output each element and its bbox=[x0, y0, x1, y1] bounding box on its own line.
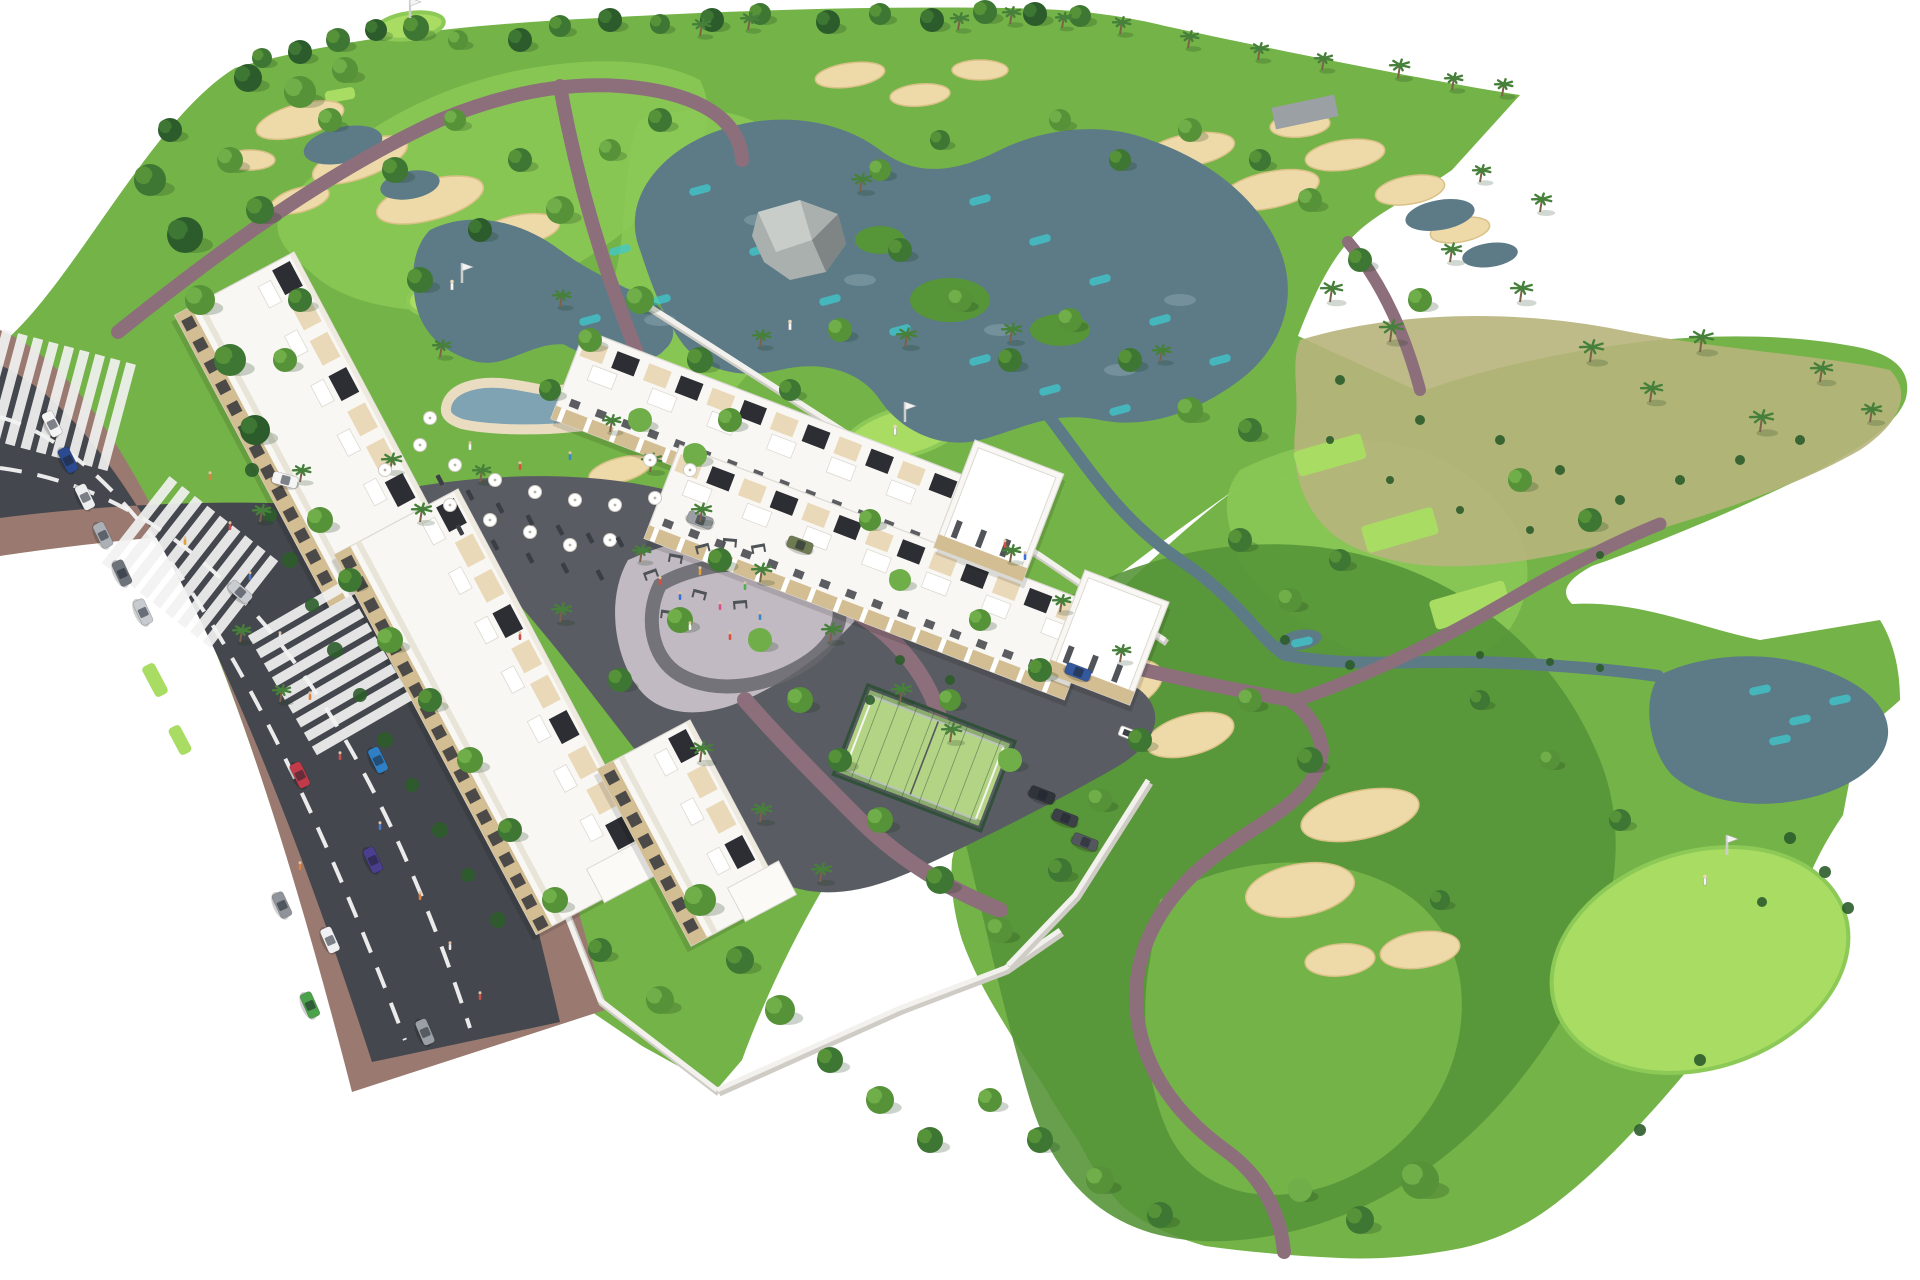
palm-crown bbox=[830, 627, 834, 631]
tree-lobe bbox=[1550, 757, 1560, 767]
person-body bbox=[449, 944, 452, 950]
tree-lobe bbox=[1009, 356, 1021, 368]
tree-lobe bbox=[1099, 1176, 1113, 1190]
tree-lobe bbox=[899, 246, 911, 258]
tree-lobe bbox=[929, 1136, 942, 1149]
palm-crown bbox=[480, 468, 484, 472]
person-figure bbox=[379, 821, 382, 830]
tree-lobe bbox=[1249, 426, 1261, 438]
tree-lobe bbox=[989, 1096, 1001, 1108]
parasol-pole bbox=[489, 519, 492, 522]
person-body bbox=[569, 454, 572, 460]
palm-crown bbox=[560, 293, 564, 297]
person-body bbox=[279, 634, 282, 640]
bush bbox=[327, 642, 343, 658]
palm-crown bbox=[1590, 345, 1594, 349]
tree-lobe bbox=[454, 117, 465, 128]
person-figure bbox=[519, 461, 522, 470]
person-figure bbox=[744, 581, 747, 590]
person-head bbox=[339, 751, 342, 754]
golfer-body bbox=[451, 283, 454, 290]
parasol-pole bbox=[419, 444, 422, 447]
person-figure bbox=[689, 621, 692, 630]
palm-crown bbox=[440, 343, 444, 347]
tree-lobe bbox=[419, 276, 432, 289]
palm-crown bbox=[1060, 598, 1064, 602]
tree-lobe bbox=[254, 426, 269, 441]
palm-crown bbox=[1398, 63, 1402, 67]
bush bbox=[1415, 415, 1425, 425]
person-head bbox=[309, 691, 312, 694]
person-head bbox=[719, 601, 722, 604]
person-figure bbox=[309, 691, 312, 700]
palm-crown bbox=[560, 607, 564, 611]
palm-crown bbox=[280, 688, 284, 692]
bush bbox=[945, 675, 955, 685]
bush bbox=[1456, 506, 1464, 514]
tree-lobe bbox=[1139, 736, 1151, 748]
palm-crown bbox=[420, 507, 424, 511]
tree-lobe bbox=[879, 1096, 893, 1110]
person-figure bbox=[719, 601, 722, 610]
bush bbox=[1675, 475, 1685, 485]
tree-lobe bbox=[979, 617, 990, 628]
person-body bbox=[679, 594, 682, 600]
palm-crown bbox=[240, 628, 244, 632]
golfer-head bbox=[893, 425, 897, 429]
tree-lobe bbox=[1159, 1211, 1172, 1224]
tree-lobe bbox=[299, 48, 311, 60]
golfer-body bbox=[1704, 878, 1707, 885]
parasol-pole bbox=[429, 417, 432, 420]
car bbox=[268, 889, 294, 923]
tree bbox=[765, 995, 803, 1025]
palm-crown bbox=[1452, 76, 1456, 80]
tree-lobe bbox=[1099, 796, 1111, 808]
tree-lobe bbox=[729, 416, 741, 428]
person-figure bbox=[279, 631, 282, 640]
tree-lobe bbox=[519, 156, 531, 168]
bush bbox=[895, 655, 905, 665]
tree bbox=[1348, 248, 1379, 272]
parasol-pole bbox=[574, 499, 577, 502]
parasol bbox=[644, 454, 657, 467]
palm-crown bbox=[760, 567, 764, 571]
palm-crown bbox=[700, 507, 704, 511]
golfer bbox=[1703, 875, 1707, 885]
person-figure bbox=[469, 441, 472, 450]
parasol-pole bbox=[454, 464, 457, 467]
person-body bbox=[759, 614, 762, 620]
bush bbox=[461, 868, 475, 882]
tree-lobe bbox=[1419, 1174, 1438, 1193]
parasol bbox=[604, 534, 617, 547]
palm-crown bbox=[1760, 415, 1764, 419]
person-body bbox=[1024, 554, 1027, 560]
tree bbox=[817, 1047, 850, 1073]
tree-lobe bbox=[229, 355, 245, 371]
tree-lobe bbox=[759, 11, 770, 22]
palm-crown bbox=[260, 508, 264, 512]
tree-lobe bbox=[1619, 817, 1630, 828]
person-head bbox=[1024, 551, 1027, 554]
person-figure bbox=[449, 941, 452, 950]
tree-lobe bbox=[1519, 476, 1531, 488]
bush bbox=[1476, 651, 1484, 659]
palm-crown bbox=[1010, 10, 1014, 14]
person-figure bbox=[1004, 539, 1007, 548]
palm-tree bbox=[1532, 194, 1555, 216]
person-head bbox=[744, 581, 747, 584]
tree-lobe bbox=[599, 946, 611, 958]
tree-lobe bbox=[1359, 256, 1371, 268]
tree-lobe bbox=[1339, 557, 1350, 568]
bush bbox=[1280, 635, 1290, 645]
person-head bbox=[519, 631, 522, 634]
palm-crown bbox=[748, 16, 752, 20]
tree-lobe bbox=[879, 816, 892, 829]
person-head bbox=[449, 941, 452, 944]
parasol-pole bbox=[614, 504, 617, 507]
person-head bbox=[569, 451, 572, 454]
tree-lobe bbox=[759, 636, 771, 648]
person-head bbox=[184, 536, 187, 539]
person-body bbox=[479, 994, 482, 1000]
golfer bbox=[788, 320, 792, 330]
tree-lobe bbox=[1309, 756, 1322, 769]
bush bbox=[1842, 902, 1854, 914]
palm-tree bbox=[1442, 244, 1465, 266]
tree-lobe bbox=[699, 356, 712, 369]
person-head bbox=[249, 571, 252, 574]
bush bbox=[405, 778, 419, 792]
tree-lobe bbox=[149, 175, 165, 191]
person-body bbox=[519, 464, 522, 470]
palm-crown bbox=[1700, 335, 1704, 339]
palm-crown bbox=[1322, 56, 1326, 60]
palm-crown bbox=[1258, 46, 1262, 50]
tree-lobe bbox=[619, 676, 631, 688]
tree bbox=[866, 1086, 902, 1114]
tree-lobe bbox=[469, 756, 482, 769]
tree-lobe bbox=[879, 11, 890, 22]
tree-lobe bbox=[1309, 196, 1321, 208]
flag-pennant bbox=[410, 0, 421, 6]
tree-lobe bbox=[639, 416, 651, 428]
bush bbox=[1596, 664, 1604, 672]
parasol-pole bbox=[649, 459, 652, 462]
bush bbox=[245, 463, 259, 477]
parasol bbox=[449, 459, 462, 472]
palm-crown bbox=[1120, 20, 1124, 24]
tree-lobe bbox=[319, 516, 332, 529]
person-body bbox=[209, 474, 212, 480]
car bbox=[296, 989, 322, 1023]
person-figure bbox=[679, 591, 682, 600]
parasol-pole bbox=[529, 531, 532, 534]
person-body bbox=[229, 524, 232, 530]
palm-tree bbox=[1511, 282, 1536, 306]
tree-lobe bbox=[262, 55, 272, 65]
bush bbox=[1634, 1124, 1646, 1136]
person-figure bbox=[299, 861, 302, 870]
tree-lobe bbox=[959, 296, 971, 308]
tree-lobe bbox=[659, 996, 673, 1010]
person-head bbox=[469, 441, 472, 444]
palm-tree bbox=[1473, 165, 1493, 185]
bush bbox=[1345, 660, 1355, 670]
person-body bbox=[309, 694, 312, 700]
palm-crown bbox=[1120, 648, 1124, 652]
tree-lobe bbox=[869, 517, 880, 528]
tree-lobe bbox=[1069, 316, 1081, 328]
tree-lobe bbox=[1249, 696, 1261, 708]
person-figure bbox=[1024, 551, 1027, 560]
tree-lobe bbox=[479, 226, 491, 238]
tree-lobe bbox=[394, 166, 407, 179]
person-head bbox=[479, 991, 482, 994]
tree bbox=[326, 28, 357, 52]
palm-crown bbox=[390, 457, 394, 461]
parasol-pole bbox=[569, 544, 572, 547]
person-body bbox=[699, 569, 702, 575]
person-head bbox=[699, 566, 702, 569]
palm-crown bbox=[1820, 366, 1824, 370]
bush bbox=[282, 552, 298, 568]
bush bbox=[1795, 435, 1805, 445]
tree-lobe bbox=[1039, 666, 1051, 678]
pond bbox=[1461, 239, 1520, 271]
person-figure bbox=[419, 891, 422, 900]
tree-lobe bbox=[229, 156, 242, 169]
person-head bbox=[729, 631, 732, 634]
tree-lobe bbox=[509, 826, 521, 838]
tree-lobe bbox=[329, 116, 341, 128]
parasol-pole bbox=[654, 497, 657, 500]
bush bbox=[353, 688, 367, 702]
tree-lobe bbox=[827, 18, 839, 30]
tree-lobe bbox=[299, 87, 315, 103]
tree-lobe bbox=[899, 577, 910, 588]
tree-lobe bbox=[719, 556, 731, 568]
person-body bbox=[659, 579, 662, 585]
golfer-body bbox=[894, 428, 897, 435]
palm-crown bbox=[640, 548, 644, 552]
tree-lobe bbox=[660, 21, 670, 31]
tree-lobe bbox=[169, 126, 181, 138]
palm-crown bbox=[1540, 197, 1544, 201]
bush bbox=[1735, 455, 1745, 465]
person-figure bbox=[699, 566, 702, 575]
palm-crown bbox=[905, 332, 909, 336]
bush bbox=[305, 598, 319, 612]
person-head bbox=[379, 821, 382, 824]
bush bbox=[1546, 658, 1554, 666]
palm-crown bbox=[1160, 348, 1164, 352]
bush bbox=[865, 695, 875, 705]
person-body bbox=[519, 634, 522, 640]
person-head bbox=[1004, 539, 1007, 542]
tree-lobe bbox=[1259, 157, 1270, 168]
person-figure bbox=[249, 571, 252, 580]
tree-lobe bbox=[1419, 296, 1431, 308]
golfer bbox=[893, 425, 897, 435]
palm-crown bbox=[1650, 386, 1654, 390]
bush bbox=[1819, 866, 1831, 878]
bush bbox=[377, 732, 393, 748]
bush bbox=[490, 912, 506, 928]
tree-lobe bbox=[699, 895, 715, 911]
parasol bbox=[484, 514, 497, 527]
tree-lobe bbox=[1299, 1186, 1311, 1198]
parasol bbox=[444, 499, 457, 512]
tree-lobe bbox=[559, 206, 573, 220]
light-reflection bbox=[1164, 294, 1196, 306]
parasol bbox=[424, 412, 437, 425]
person-head bbox=[689, 621, 692, 624]
person-figure bbox=[759, 611, 762, 620]
scene-canvas bbox=[0, 0, 1920, 1280]
person-body bbox=[184, 539, 187, 545]
golfer bbox=[450, 280, 454, 290]
person-body bbox=[299, 864, 302, 870]
palm-crown bbox=[820, 867, 824, 871]
palm-crown bbox=[1480, 168, 1484, 172]
person-body bbox=[719, 604, 722, 610]
parasol bbox=[489, 474, 502, 487]
person-body bbox=[469, 444, 472, 450]
tree-lobe bbox=[779, 1006, 794, 1021]
parasol-pole bbox=[494, 479, 497, 482]
bush bbox=[432, 822, 448, 838]
person-body bbox=[729, 634, 732, 640]
tree-lobe bbox=[1059, 117, 1070, 128]
palm-crown bbox=[1520, 286, 1524, 290]
parasol bbox=[684, 464, 697, 477]
person-head bbox=[759, 611, 762, 614]
parasol bbox=[609, 499, 622, 512]
palm-crown bbox=[1450, 247, 1454, 251]
tree-lobe bbox=[184, 230, 202, 248]
tree-lobe bbox=[554, 896, 567, 909]
tree-lobe bbox=[589, 336, 601, 348]
person-head bbox=[519, 461, 522, 464]
palm-crown bbox=[1188, 34, 1192, 38]
person-head bbox=[229, 521, 232, 524]
tree-lobe bbox=[879, 167, 890, 178]
person-head bbox=[209, 471, 212, 474]
palm-crown bbox=[700, 746, 704, 750]
light-reflection bbox=[844, 274, 876, 286]
person-figure bbox=[479, 991, 482, 1000]
tree-lobe bbox=[789, 387, 800, 398]
parasol bbox=[524, 526, 537, 539]
tree-lobe bbox=[1009, 756, 1021, 768]
tree-lobe bbox=[299, 296, 311, 308]
palm-crown bbox=[300, 468, 304, 472]
tree-lobe bbox=[1079, 13, 1090, 24]
parasol-pole bbox=[384, 469, 387, 472]
person-head bbox=[299, 861, 302, 864]
person-body bbox=[744, 584, 747, 590]
tree-lobe bbox=[519, 36, 531, 48]
palm-crown bbox=[1870, 407, 1874, 411]
person-figure bbox=[519, 631, 522, 640]
palm-crown bbox=[700, 22, 704, 26]
parasol-pole bbox=[609, 539, 612, 542]
bush bbox=[1694, 1054, 1706, 1066]
tree-lobe bbox=[389, 636, 402, 649]
tree-lobe bbox=[415, 24, 428, 37]
person-body bbox=[379, 824, 382, 830]
palm-crown bbox=[1502, 82, 1506, 86]
tree-lobe bbox=[711, 16, 723, 28]
tree-lobe bbox=[1440, 897, 1450, 907]
parasol bbox=[414, 439, 427, 452]
sand-bunker bbox=[952, 60, 1008, 80]
tree-lobe bbox=[609, 147, 620, 158]
tree-lobe bbox=[940, 137, 950, 147]
palm-tree bbox=[1321, 282, 1346, 306]
person-head bbox=[679, 591, 682, 594]
tree-lobe bbox=[1189, 406, 1202, 419]
tree bbox=[978, 1088, 1009, 1112]
tree-lobe bbox=[1119, 157, 1130, 168]
tree-lobe bbox=[659, 116, 671, 128]
tree-lobe bbox=[1359, 1216, 1373, 1230]
parasol-pole bbox=[534, 491, 537, 494]
tree-lobe bbox=[839, 326, 851, 338]
tree-lobe bbox=[1289, 596, 1301, 608]
tree-lobe bbox=[799, 696, 812, 709]
tree-lobe bbox=[694, 451, 706, 463]
parasol-pole bbox=[689, 469, 692, 472]
tree-lobe bbox=[931, 16, 943, 28]
tree-lobe bbox=[549, 387, 560, 398]
tree-lobe bbox=[839, 756, 851, 768]
tree-lobe bbox=[1039, 1136, 1052, 1149]
tree-lobe bbox=[829, 1056, 842, 1069]
palm-crown bbox=[1330, 286, 1334, 290]
palm-crown bbox=[1010, 327, 1014, 331]
tee-box bbox=[167, 724, 193, 757]
palm-crown bbox=[610, 418, 614, 422]
tree-lobe bbox=[1059, 866, 1071, 878]
tree-lobe bbox=[1189, 126, 1201, 138]
tree-lobe bbox=[739, 956, 753, 970]
person-head bbox=[419, 891, 422, 894]
person-body bbox=[689, 624, 692, 630]
tree-lobe bbox=[344, 66, 357, 79]
person-body bbox=[249, 574, 252, 580]
palm-crown bbox=[860, 177, 864, 181]
tree-lobe bbox=[1129, 356, 1141, 368]
palm-crown bbox=[900, 687, 904, 691]
bush bbox=[1495, 435, 1505, 445]
car bbox=[129, 596, 155, 630]
parasol bbox=[649, 492, 662, 505]
person-head bbox=[659, 576, 662, 579]
tree-lobe bbox=[458, 37, 468, 47]
golfer-head bbox=[450, 280, 454, 284]
bush bbox=[1386, 476, 1394, 484]
tree-lobe bbox=[984, 8, 996, 20]
bush bbox=[1326, 436, 1334, 444]
parasol bbox=[379, 464, 392, 477]
person-figure bbox=[659, 576, 662, 585]
palm-crown bbox=[1390, 325, 1394, 329]
tree-lobe bbox=[639, 296, 653, 310]
